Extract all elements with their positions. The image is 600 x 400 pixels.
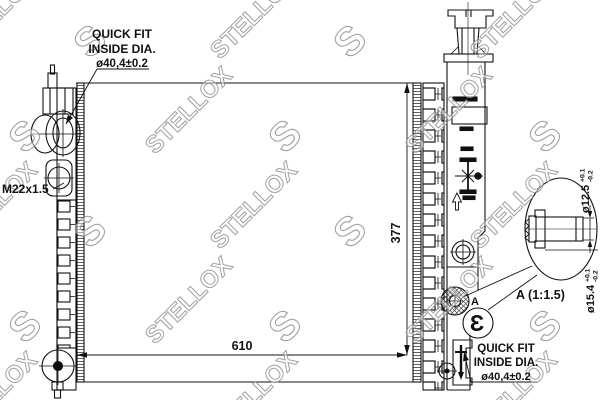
quick-fit-top-label-line2: INSIDE DIA. xyxy=(88,42,155,56)
watermark-text: STELLOX xyxy=(0,347,42,400)
watermark-text: STELLOX xyxy=(0,0,42,64)
quick-fit-clip-icon: Ɛ xyxy=(470,310,484,336)
watermark-logo: S xyxy=(325,396,375,400)
dia-outer-tol-minus: -0.2 xyxy=(593,270,600,282)
drawing-canvas: STELLOXSSTELLOXSSTELLOXSSTELLOXSSTELLOXS… xyxy=(0,0,600,400)
quick-fit-bottom-label-line3: ø40,4±0.2 xyxy=(481,371,530,383)
watermark-logo: S xyxy=(0,301,50,351)
dimension-height-value: 377 xyxy=(389,223,403,244)
watermark-logo: S xyxy=(65,396,115,400)
dia-outer-tol-plus: +0.1 xyxy=(585,268,592,282)
dimension-width-value: 610 xyxy=(232,339,253,353)
watermark-text: STELLOX xyxy=(0,157,42,254)
watermark-text: STELLOX xyxy=(140,252,237,349)
watermark-text: STELLOX xyxy=(465,157,562,254)
detail-view-title: A (1:1.5) xyxy=(516,288,565,302)
dia-outer-value: ø15.4 xyxy=(585,284,597,313)
watermark-logo: S xyxy=(0,111,50,161)
dia-inner-dimension: ø12.5 +0.1 -0.2 xyxy=(580,168,595,213)
radiator-technical-drawing: STELLOXSSTELLOXSSTELLOXSSTELLOXSSTELLOXS… xyxy=(0,0,600,400)
quick-fit-bottom-label-line2: INSIDE DIA. xyxy=(474,357,539,369)
dia-inner-tol-plus: +0.1 xyxy=(580,168,587,182)
watermark-logo: S xyxy=(260,111,310,161)
watermark-text: STELLOX xyxy=(205,157,302,254)
watermark-logo: S xyxy=(325,206,375,256)
dimension-height xyxy=(404,83,410,355)
dimension-width xyxy=(77,352,407,358)
quick-fit-top-label-line1: QUICK FIT xyxy=(92,27,153,41)
watermark-logo: S xyxy=(325,16,375,66)
dia-inner-value: ø12.5 xyxy=(580,185,592,213)
dia-outer-dimension: ø15.4 +0.1 -0.2 xyxy=(585,268,600,313)
watermark-logo: S xyxy=(520,111,570,161)
watermark-text: STELLOX xyxy=(140,62,237,159)
quick-fit-top-label-line3: ø40,4±0.2 xyxy=(96,58,148,70)
quick-fit-bottom-label-line1: QUICK FIT xyxy=(477,343,535,355)
watermark-text: STELLOX xyxy=(205,0,302,64)
thread-size-label: M22x1.5 xyxy=(2,182,49,196)
watermark-logo: S xyxy=(260,301,310,351)
dia-inner-tol-minus: -0.2 xyxy=(588,170,595,182)
port-ref-label: A xyxy=(471,296,479,308)
